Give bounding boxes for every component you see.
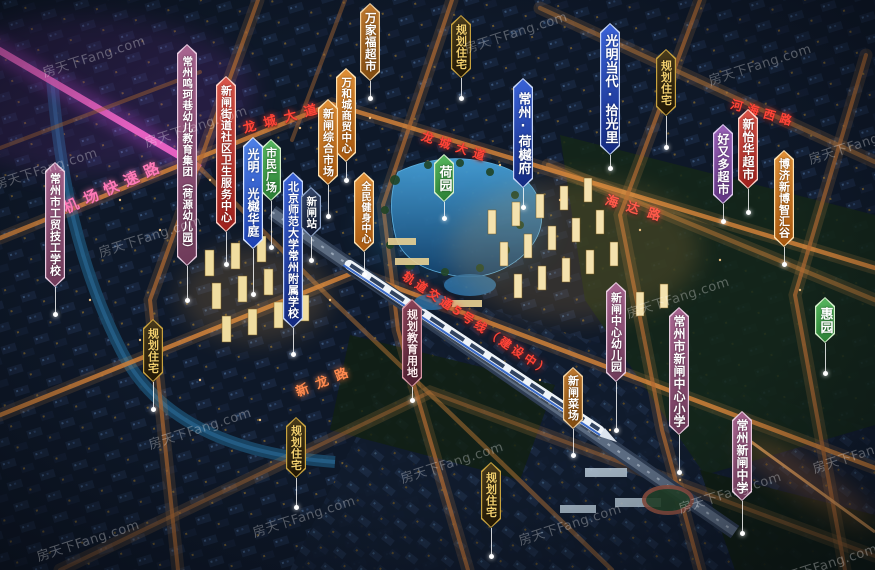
marker-label: 规划住宅 xyxy=(291,425,302,471)
marker-zongheshichang[interactable]: 新闸综合市场 xyxy=(317,99,339,219)
marker-shiguangli[interactable]: 光明当代·拾光里 xyxy=(599,23,621,171)
marker-pointer-line xyxy=(364,252,365,272)
marker-flag: 新闸中心幼儿园 xyxy=(606,282,626,382)
marker-location-dot xyxy=(151,407,156,412)
marker-pointer-line xyxy=(679,435,680,470)
marker-xiaoxue[interactable]: 常州市新闸中心小学 xyxy=(668,307,690,475)
marker-flag: 博济新博智汇谷 xyxy=(774,150,794,247)
marker-label: 万家福超市 xyxy=(364,12,376,72)
marker-pointer-line xyxy=(742,501,743,531)
marker-label: 规划住宅 xyxy=(486,472,497,518)
marker-heyuefu[interactable]: 常州·荷樾府 xyxy=(512,78,534,210)
marker-pointer-line xyxy=(55,287,56,312)
marker-guihuazhuzhai5[interactable]: 规划住宅 xyxy=(480,462,502,559)
marker-pointer-line xyxy=(296,478,297,505)
marker-weisheng[interactable]: 新闸街道社区卫生服务中心 xyxy=(215,76,237,267)
marker-location-dot xyxy=(782,262,787,267)
marker-label: 规划教育用地 xyxy=(407,309,418,378)
marker-pointer-line xyxy=(723,204,724,219)
marker-flag: 万家福超市 xyxy=(360,3,380,81)
marker-flag: 新闸菜场 xyxy=(563,367,583,429)
marker-flag: 新闸街道社区卫生服务中心 xyxy=(216,76,236,232)
marker-pointer-line xyxy=(825,343,826,371)
marker-guihuazhuzhai4[interactable]: 规划住宅 xyxy=(285,417,307,510)
marker-label: 好又多超市 xyxy=(717,133,729,196)
marker-guangyuehuating[interactable]: 光明·光樾华庭 xyxy=(242,137,264,297)
marker-pointer-line xyxy=(784,247,785,262)
marker-flag: 规划住宅 xyxy=(451,15,471,78)
marker-pointer-line xyxy=(748,189,749,210)
marker-location-dot xyxy=(521,205,526,210)
marker-location-dot xyxy=(53,312,58,317)
marker-location-dot xyxy=(571,453,576,458)
marker-flag: 常州·荷樾府 xyxy=(513,78,533,188)
marker-location-dot xyxy=(442,216,447,221)
marker-caichang[interactable]: 新闸菜场 xyxy=(562,367,584,458)
marker-guihuazhuzhai2[interactable]: 规划住宅 xyxy=(655,49,677,150)
marker-label: 常州·荷樾府 xyxy=(517,92,530,175)
marker-youeryuan[interactable]: 新闸中心幼儿园 xyxy=(605,282,627,433)
marker-label: 新闸中心幼儿园 xyxy=(611,292,622,373)
marker-pointer-line xyxy=(461,78,462,96)
marker-flag: 光明·光樾华庭 xyxy=(243,137,263,249)
marker-wanjiafu[interactable]: 万家福超市 xyxy=(359,3,381,101)
marker-label: 新闸街道社区卫生服务中心 xyxy=(221,85,232,223)
marker-location-dot xyxy=(185,298,190,303)
marker-location-dot xyxy=(251,292,256,297)
marker-label: 惠园 xyxy=(819,307,832,334)
marker-flag: 光明当代·拾光里 xyxy=(600,23,620,155)
marker-flag: 常州市新闸中心小学 xyxy=(669,307,689,435)
marker-huiyuan[interactable]: 惠园 xyxy=(814,297,836,376)
marker-pointer-line xyxy=(328,185,329,214)
marker-pointer-line xyxy=(187,266,188,298)
marker-flag: 全民健身中心 xyxy=(354,172,374,252)
marker-pointer-line xyxy=(253,249,254,292)
marker-xinyihua[interactable]: 新怡华超市 xyxy=(737,109,759,215)
marker-flag: 荷园 xyxy=(434,154,454,202)
marker-label: 博济新博智汇谷 xyxy=(779,158,790,239)
marker-gongmao[interactable]: 常州市工贸技工学校 xyxy=(44,162,66,317)
marker-location-dot xyxy=(344,178,349,183)
marker-pointer-line xyxy=(444,202,445,216)
marker-location-dot xyxy=(410,398,415,403)
marker-flag: 常州新闸中学 xyxy=(732,411,752,501)
marker-location-dot xyxy=(823,371,828,376)
marker-label: 新闸综合市场 xyxy=(323,108,334,177)
marker-flag: 惠园 xyxy=(815,297,835,343)
marker-flag: 规划住宅 xyxy=(656,49,676,116)
marker-guihuazhuzhai3[interactable]: 规划住宅 xyxy=(142,319,164,412)
marker-location-dot xyxy=(677,470,682,475)
marker-label: 常州市工贸技工学校 xyxy=(50,173,61,277)
marker-label: 新怡华超市 xyxy=(742,118,754,181)
marker-pointer-line xyxy=(293,328,294,352)
marker-pointer-line xyxy=(370,81,371,96)
marker-pointer-line xyxy=(412,387,413,398)
marker-flag: 规划教育用地 xyxy=(402,299,422,387)
marker-label: 常州新闸中学 xyxy=(736,419,748,494)
marker-label: 常州鸣珂巷幼儿教育集团（荷源幼儿园） xyxy=(182,56,193,254)
marker-pointer-line xyxy=(226,232,227,262)
marker-pointer-line xyxy=(666,116,667,145)
marker-location-dot xyxy=(368,96,373,101)
marker-flag: 规划住宅 xyxy=(143,319,163,382)
marker-haoyouduo[interactable]: 好又多超市 xyxy=(712,124,734,224)
marker-flag: 常州鸣珂巷幼儿教育集团（荷源幼儿园） xyxy=(177,44,197,266)
marker-label: 全民健身中心 xyxy=(359,181,369,244)
marker-mingke[interactable]: 常州鸣珂巷幼儿教育集团（荷源幼儿园） xyxy=(176,44,198,303)
marker-pointer-line xyxy=(153,382,154,407)
marker-flag: 新怡华超市 xyxy=(738,109,758,189)
marker-pointer-line xyxy=(311,237,312,258)
marker-pointer-line xyxy=(271,201,272,245)
marker-location-dot xyxy=(746,210,751,215)
marker-flag: 新闸综合市场 xyxy=(318,99,338,185)
marker-pointer-line xyxy=(573,429,574,453)
marker-location-dot xyxy=(614,428,619,433)
marker-flag: 规划住宅 xyxy=(286,417,306,478)
marker-flag: 好又多超市 xyxy=(713,124,733,204)
marker-location-dot xyxy=(664,145,669,150)
marker-label: 常州市新闸中心小学 xyxy=(673,315,685,428)
marker-pointer-line xyxy=(523,188,524,205)
marker-label: 新闸站 xyxy=(306,196,317,229)
marker-label: 规划住宅 xyxy=(456,24,467,70)
marker-pointer-line xyxy=(346,162,347,178)
marker-location-dot xyxy=(309,258,314,263)
marker-location-dot xyxy=(459,96,464,101)
marker-flag: 市民广场 xyxy=(261,139,281,201)
marker-label: 光明当代·拾光里 xyxy=(604,34,617,144)
marker-location-dot xyxy=(740,531,745,536)
marker-label: 北京师范大学常州附属学校 xyxy=(288,181,299,319)
marker-pointer-line xyxy=(616,382,617,428)
marker-location-dot xyxy=(294,505,299,510)
marker-label: 万和城商贸中心 xyxy=(341,77,352,154)
aerial-map: 机场快速路 龙城大道 龙城大道 河海西路 海达路 新龙路 轨道交通5号线（建设中… xyxy=(0,0,875,570)
marker-jiaoyuyongdi[interactable]: 规划教育用地 xyxy=(401,299,423,403)
marker-label: 规划住宅 xyxy=(661,60,672,106)
marker-guihuazhuzhai1[interactable]: 规划住宅 xyxy=(450,15,472,101)
marker-pointer-line xyxy=(491,528,492,554)
marker-location-dot xyxy=(608,166,613,171)
marker-location-dot xyxy=(362,272,367,277)
marker-flag: 万和城商贸中心 xyxy=(336,68,356,162)
marker-label: 光明·光樾华庭 xyxy=(247,148,259,238)
marker-location-dot xyxy=(489,554,494,559)
marker-label: 荷园 xyxy=(438,165,451,192)
marker-label: 规划住宅 xyxy=(148,328,159,374)
marker-label: 新闸菜场 xyxy=(568,375,579,421)
marker-location-dot xyxy=(224,262,229,267)
marker-location-dot xyxy=(291,352,296,357)
marker-flag: 常州市工贸技工学校 xyxy=(45,162,65,287)
marker-location-dot xyxy=(326,214,331,219)
marker-pointer-line xyxy=(610,155,611,166)
marker-boji[interactable]: 博济新博智汇谷 xyxy=(773,150,795,267)
marker-heyuan[interactable]: 荷园 xyxy=(433,154,455,221)
marker-flag: 规划住宅 xyxy=(481,462,501,528)
marker-zhongxue[interactable]: 常州新闸中学 xyxy=(731,411,753,536)
marker-label: 市民广场 xyxy=(266,147,277,193)
marker-location-dot xyxy=(721,219,726,224)
marker-quanmin[interactable]: 全民健身中心 xyxy=(353,172,375,277)
marker-location-dot xyxy=(269,245,274,250)
